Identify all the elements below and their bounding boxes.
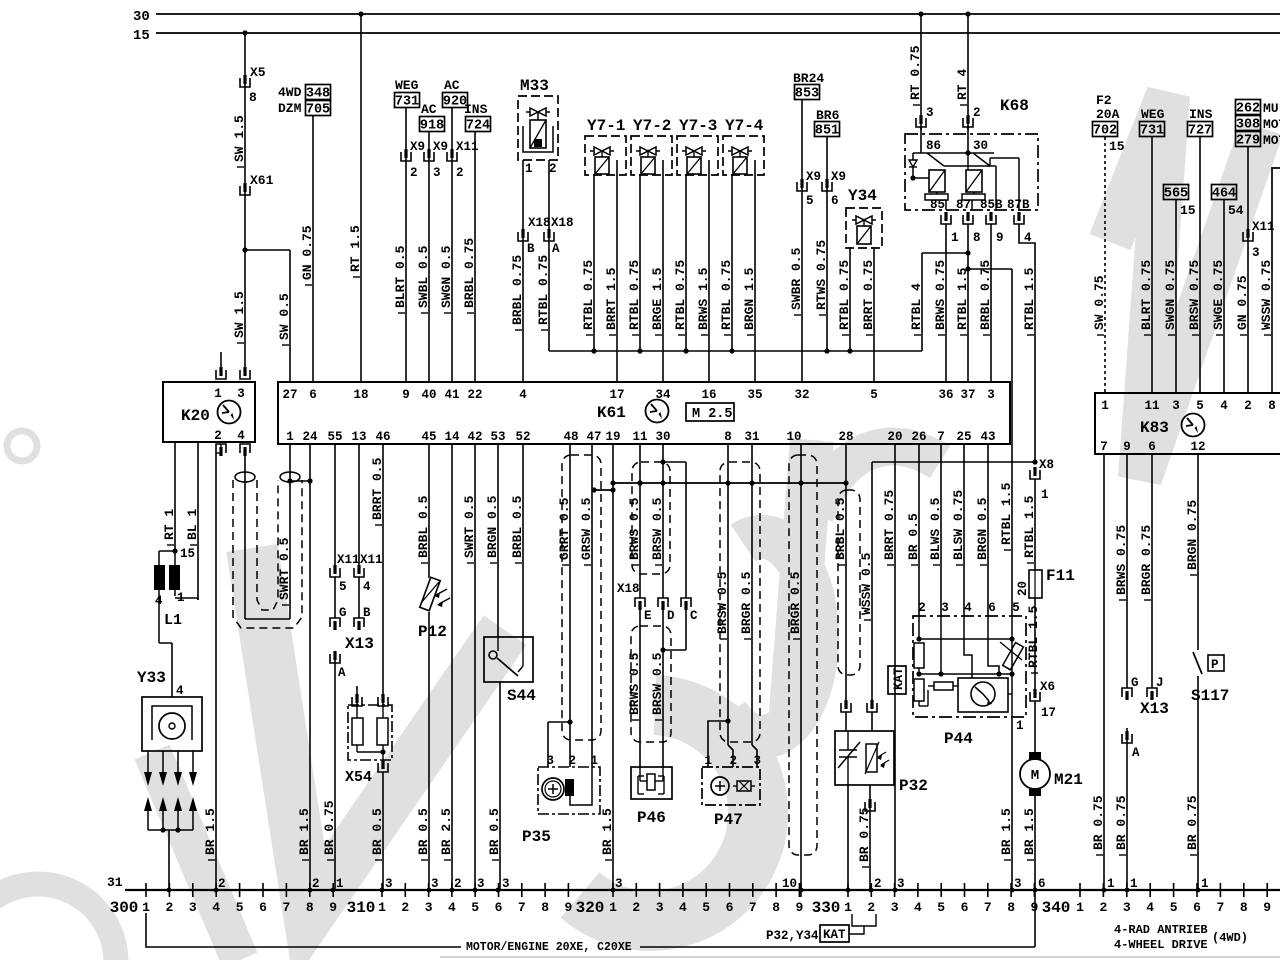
svg-text:X18: X18: [528, 216, 551, 230]
svg-text:47: 47: [586, 430, 601, 444]
svg-text:8: 8: [772, 900, 780, 915]
svg-text:BR 0.75: BR 0.75: [322, 800, 337, 855]
svg-text:RT 4: RT 4: [955, 69, 970, 100]
svg-text:20: 20: [1016, 581, 1030, 596]
svg-text:2: 2: [218, 877, 226, 891]
svg-text:M33: M33: [520, 77, 549, 95]
svg-text:BRGR 0.75: BRGR 0.75: [1139, 525, 1154, 595]
svg-text:WSSW 0.5: WSSW 0.5: [859, 552, 874, 615]
svg-text:P: P: [1211, 658, 1219, 672]
svg-text:3: 3: [502, 877, 510, 891]
svg-text:1: 1: [1076, 900, 1084, 915]
svg-text:RTWS 0.75: RTWS 0.75: [814, 240, 829, 310]
svg-text:5: 5: [702, 900, 710, 915]
svg-text:2: 2: [1099, 900, 1107, 915]
svg-text:1: 1: [590, 754, 598, 768]
svg-text:4: 4: [448, 900, 456, 915]
svg-text:RTBL 0.75: RTBL 0.75: [536, 255, 551, 325]
svg-text:BR 0.5: BR 0.5: [906, 513, 921, 560]
svg-text:20A: 20A: [1096, 107, 1120, 122]
svg-text:BRBL 0.75: BRBL 0.75: [510, 255, 525, 325]
svg-text:5: 5: [1170, 900, 1178, 915]
svg-text:262: 262: [1236, 102, 1260, 117]
svg-text:SW 0.5: SW 0.5: [277, 293, 292, 340]
svg-text:L1: L1: [164, 612, 182, 629]
svg-text:6: 6: [726, 900, 734, 915]
svg-text:X18: X18: [551, 216, 574, 230]
svg-text:36: 36: [938, 388, 953, 402]
svg-text:SWRT 0.5: SWRT 0.5: [462, 495, 477, 558]
svg-text:918: 918: [420, 119, 444, 134]
svg-text:3: 3: [425, 900, 433, 915]
svg-text:RTBL 0.75: RTBL 0.75: [627, 260, 642, 330]
svg-text:GN 0.75: GN 0.75: [1235, 275, 1250, 330]
svg-text:BR 1.5: BR 1.5: [999, 808, 1014, 855]
svg-text:BR 1.5: BR 1.5: [203, 808, 218, 855]
svg-text:4: 4: [1146, 900, 1154, 915]
svg-text:3: 3: [1123, 900, 1131, 915]
svg-text:853: 853: [795, 87, 819, 102]
svg-text:2: 2: [1244, 399, 1252, 413]
svg-text:6: 6: [988, 601, 996, 615]
svg-text:2: 2: [312, 877, 320, 891]
svg-text:GRRT 0.5: GRRT 0.5: [557, 497, 572, 560]
svg-text:724: 724: [466, 119, 490, 134]
svg-text:P32,Y34: P32,Y34: [766, 929, 819, 943]
svg-text:RTBL 1.5: RTBL 1.5: [1022, 495, 1037, 558]
svg-text:3: 3: [433, 166, 441, 180]
svg-text:WEG: WEG: [1141, 107, 1165, 122]
svg-text:3: 3: [1172, 399, 1180, 413]
svg-text:BR 1.5: BR 1.5: [1022, 808, 1037, 855]
svg-text:X11: X11: [360, 553, 383, 567]
svg-text:X5: X5: [250, 65, 266, 80]
svg-text:2: 2: [632, 900, 640, 915]
svg-text:7: 7: [282, 900, 290, 915]
svg-text:P32: P32: [899, 777, 928, 795]
svg-text:22: 22: [467, 388, 482, 402]
svg-text:GRSW 0.5: GRSW 0.5: [579, 497, 594, 560]
svg-text:B: B: [527, 242, 535, 256]
svg-text:BLSW 0.75: BLSW 0.75: [951, 490, 966, 560]
svg-text:X11: X11: [337, 553, 360, 567]
svg-text:8: 8: [249, 90, 257, 105]
svg-text:5: 5: [236, 900, 244, 915]
svg-text:BRWS 0.75: BRWS 0.75: [933, 260, 948, 330]
svg-text:30: 30: [133, 9, 150, 25]
svg-text:1: 1: [844, 900, 852, 915]
svg-text:1: 1: [286, 430, 294, 444]
svg-text:87: 87: [956, 198, 971, 212]
svg-text:AC: AC: [421, 102, 437, 117]
svg-text:4-RAD ANTRIEB: 4-RAD ANTRIEB: [1114, 923, 1208, 937]
svg-text:F2: F2: [1096, 93, 1112, 108]
svg-text:52: 52: [515, 430, 530, 444]
svg-text:4: 4: [212, 900, 220, 915]
svg-text:P35: P35: [522, 828, 551, 846]
svg-text:565: 565: [1164, 187, 1188, 202]
svg-text:34: 34: [655, 388, 671, 402]
svg-text:SWBL 0.5: SWBL 0.5: [416, 245, 431, 308]
svg-text:1: 1: [378, 900, 386, 915]
svg-text:3: 3: [477, 877, 485, 891]
svg-text:X9: X9: [806, 170, 821, 184]
svg-text:X18: X18: [617, 582, 640, 596]
svg-text:M 2.5: M 2.5: [692, 407, 733, 422]
svg-text:K68: K68: [1000, 97, 1029, 115]
svg-text:Y7-1: Y7-1: [587, 117, 625, 135]
svg-text:RTBL 1.5: RTBL 1.5: [955, 267, 970, 330]
svg-text:340: 340: [1042, 899, 1071, 917]
svg-text:2: 2: [918, 601, 926, 615]
svg-text:BR 1.5: BR 1.5: [297, 808, 312, 855]
svg-text:BL 1: BL 1: [185, 509, 200, 540]
svg-text:1: 1: [1016, 719, 1024, 733]
svg-text:308: 308: [1236, 118, 1260, 133]
svg-text:7: 7: [984, 900, 992, 915]
svg-text:Y7-4: Y7-4: [725, 117, 764, 135]
svg-text:G: G: [1131, 676, 1139, 690]
svg-text:BR 2.5: BR 2.5: [439, 808, 454, 855]
svg-text:2: 2: [549, 162, 557, 176]
svg-text:17: 17: [1041, 706, 1056, 720]
svg-text:3: 3: [987, 388, 995, 402]
svg-text:X6: X6: [1040, 680, 1055, 694]
svg-text:3: 3: [897, 877, 905, 891]
svg-text:BR 0.75: BR 0.75: [1185, 795, 1200, 850]
svg-text:P46: P46: [637, 809, 666, 827]
svg-text:S117: S117: [1191, 687, 1229, 705]
svg-text:S44: S44: [507, 687, 536, 705]
svg-text:8: 8: [724, 430, 732, 444]
svg-text:2: 2: [214, 429, 222, 443]
svg-text:BRGR 0.5: BRGR 0.5: [739, 571, 754, 634]
svg-text:54: 54: [1228, 203, 1244, 218]
svg-text:9: 9: [1263, 900, 1271, 915]
svg-text:3: 3: [546, 754, 554, 768]
svg-text:X61: X61: [250, 173, 274, 188]
svg-text:2: 2: [867, 900, 875, 915]
svg-text:16: 16: [701, 388, 716, 402]
svg-text:8: 8: [1240, 900, 1248, 915]
svg-text:BLWS 0.5: BLWS 0.5: [928, 497, 943, 560]
svg-text:5: 5: [339, 580, 347, 594]
svg-text:K20: K20: [181, 407, 210, 425]
svg-text:Y34: Y34: [848, 187, 877, 205]
svg-text:1: 1: [609, 900, 617, 915]
svg-text:8: 8: [306, 900, 314, 915]
svg-text:INS: INS: [1189, 107, 1213, 122]
svg-text:2: 2: [874, 877, 882, 891]
svg-text:BR 0.75: BR 0.75: [857, 807, 872, 862]
svg-text:RT 1: RT 1: [162, 509, 177, 540]
svg-text:X54: X54: [345, 769, 372, 786]
svg-text:M21: M21: [1054, 771, 1083, 789]
svg-text:BRWS 0.5: BRWS 0.5: [627, 497, 642, 560]
svg-text:BRGN 0.5: BRGN 0.5: [485, 495, 500, 558]
svg-text:RTBL 0.75: RTBL 0.75: [719, 260, 734, 330]
svg-text:9: 9: [329, 900, 337, 915]
svg-text:RTBL 0.75: RTBL 0.75: [837, 260, 852, 330]
svg-text:7: 7: [749, 900, 757, 915]
svg-text:X11: X11: [1252, 220, 1275, 234]
svg-text:BRRT 0.5: BRRT 0.5: [370, 457, 385, 520]
svg-text:BRBL 0.75: BRBL 0.75: [462, 238, 477, 308]
svg-text:MUL: MUL: [1263, 101, 1280, 116]
svg-text:BRRT 0.75: BRRT 0.75: [861, 260, 876, 330]
svg-text:5: 5: [870, 388, 878, 402]
svg-text:SW 1.5: SW 1.5: [232, 115, 247, 162]
svg-text:9: 9: [1123, 440, 1131, 454]
svg-text:KAT: KAT: [892, 667, 906, 690]
svg-text:E: E: [644, 609, 652, 623]
svg-text:2: 2: [401, 900, 409, 915]
svg-text:13: 13: [351, 430, 366, 444]
svg-text:3: 3: [615, 877, 623, 891]
svg-text:1: 1: [336, 877, 344, 891]
svg-text:4WD: 4WD: [278, 85, 302, 100]
svg-text:Y7-2: Y7-2: [633, 117, 671, 135]
svg-text:731: 731: [1140, 124, 1164, 139]
svg-text:6: 6: [831, 194, 839, 208]
svg-text:3: 3: [941, 601, 949, 615]
svg-text:BRWS 1.5: BRWS 1.5: [696, 267, 711, 330]
svg-text:320: 320: [576, 899, 605, 917]
svg-text:BR 1.5: BR 1.5: [600, 808, 615, 855]
svg-text:BR 0.75: BR 0.75: [1114, 795, 1129, 850]
svg-text:6: 6: [1038, 877, 1046, 891]
svg-text:731: 731: [395, 95, 419, 110]
svg-text:C: C: [690, 609, 698, 623]
svg-text:K83: K83: [1140, 419, 1169, 437]
svg-text:7: 7: [1216, 900, 1224, 915]
svg-text:A: A: [552, 242, 560, 256]
svg-text:MOTOR/ENGINE 20XE, C20XE: MOTOR/ENGINE 20XE, C20XE: [466, 941, 632, 954]
svg-text:5: 5: [1196, 399, 1204, 413]
svg-text:SW 0.75: SW 0.75: [1092, 275, 1107, 330]
svg-text:20: 20: [887, 430, 902, 444]
svg-text:7: 7: [518, 900, 526, 915]
svg-text:8: 8: [973, 231, 981, 245]
svg-text:AC: AC: [444, 78, 460, 93]
svg-text:5: 5: [937, 900, 945, 915]
svg-text:A: A: [1132, 746, 1140, 760]
svg-text:46: 46: [375, 430, 390, 444]
svg-text:10: 10: [786, 430, 801, 444]
svg-text:BLRT 0.5: BLRT 0.5: [393, 245, 408, 308]
svg-text:5: 5: [471, 900, 479, 915]
svg-text:BRWS 0.5: BRWS 0.5: [627, 652, 642, 715]
svg-text:6: 6: [259, 900, 267, 915]
svg-text:86: 86: [926, 139, 941, 153]
svg-text:X13: X13: [345, 635, 374, 653]
svg-text:24: 24: [302, 430, 318, 444]
svg-text:2: 2: [454, 877, 462, 891]
svg-text:464: 464: [1212, 187, 1236, 202]
svg-text:1: 1: [214, 387, 222, 401]
svg-text:1: 1: [525, 162, 533, 176]
svg-text:8: 8: [1007, 900, 1015, 915]
svg-text:RT 1.5: RT 1.5: [348, 225, 363, 272]
svg-text:MOT: MOT: [1263, 133, 1280, 148]
svg-text:11: 11: [1144, 399, 1159, 413]
svg-text:6: 6: [1148, 440, 1156, 454]
svg-text:1: 1: [1101, 399, 1109, 413]
svg-text:11: 11: [632, 430, 647, 444]
svg-text:RTBL 0.75: RTBL 0.75: [673, 260, 688, 330]
svg-text:3: 3: [1252, 246, 1260, 260]
svg-text:727: 727: [1188, 124, 1212, 139]
svg-text:28: 28: [838, 430, 853, 444]
svg-text:32: 32: [794, 388, 809, 402]
svg-text:X9: X9: [410, 140, 425, 154]
svg-text:5: 5: [806, 194, 814, 208]
svg-text:1: 1: [142, 900, 150, 915]
svg-text:X8: X8: [1039, 458, 1054, 472]
svg-text:SWRT 0.5: SWRT 0.5: [277, 537, 292, 600]
svg-text:P47: P47: [714, 811, 743, 829]
svg-text:6: 6: [495, 900, 503, 915]
svg-text:BRBL 0.5: BRBL 0.5: [510, 495, 525, 558]
svg-text:6: 6: [1193, 900, 1201, 915]
svg-text:KAT: KAT: [823, 928, 846, 942]
svg-text:P12: P12: [418, 623, 447, 641]
svg-text:1: 1: [1201, 877, 1209, 891]
svg-text:X13: X13: [1140, 700, 1169, 718]
svg-text:48: 48: [563, 430, 578, 444]
svg-text:SWBR 0.5: SWBR 0.5: [789, 247, 804, 310]
svg-text:BRGE 1.5: BRGE 1.5: [650, 267, 665, 330]
svg-text:GN 0.75: GN 0.75: [300, 225, 315, 280]
svg-text:MOT: MOT: [1263, 117, 1280, 132]
svg-text:9: 9: [795, 900, 803, 915]
svg-text:9: 9: [996, 231, 1004, 245]
svg-text:F11: F11: [1046, 567, 1075, 585]
svg-text:BRBL 0.5: BRBL 0.5: [416, 495, 431, 558]
svg-text:Y33: Y33: [137, 669, 166, 687]
svg-text:A: A: [338, 666, 346, 680]
svg-text:BRGR 0.5: BRGR 0.5: [788, 571, 803, 634]
svg-text:55: 55: [327, 430, 342, 444]
svg-text:35: 35: [747, 388, 762, 402]
svg-text:348: 348: [306, 87, 330, 102]
svg-text:SWGE 0.75: SWGE 0.75: [1211, 260, 1226, 330]
svg-text:6: 6: [961, 900, 969, 915]
svg-text:851: 851: [815, 124, 839, 139]
svg-text:40: 40: [421, 388, 436, 402]
svg-text:X9: X9: [433, 140, 448, 154]
svg-text:BLRT 0.75: BLRT 0.75: [1139, 260, 1154, 330]
svg-text:4: 4: [679, 900, 687, 915]
svg-text:2: 2: [165, 900, 173, 915]
svg-text:RTBL 1.5: RTBL 1.5: [1022, 267, 1037, 330]
svg-text:8: 8: [1268, 399, 1276, 413]
svg-text:1: 1: [1041, 488, 1049, 502]
svg-text:15: 15: [1109, 139, 1125, 154]
svg-text:BRRT 0.75: BRRT 0.75: [882, 490, 897, 560]
svg-text:3: 3: [656, 900, 664, 915]
svg-text:310: 310: [347, 899, 376, 917]
svg-text:1: 1: [951, 231, 959, 245]
svg-text:BR 0.5: BR 0.5: [370, 808, 385, 855]
svg-text:4: 4: [176, 684, 184, 698]
svg-text:1: 1: [1130, 877, 1138, 891]
svg-text:705: 705: [306, 103, 330, 118]
svg-text:5: 5: [1012, 601, 1020, 615]
svg-text:BR 0.5: BR 0.5: [416, 808, 431, 855]
svg-text:(4WD): (4WD): [1212, 931, 1248, 945]
svg-text:BRGN 0.5: BRGN 0.5: [975, 497, 990, 560]
svg-text:RT 0.75: RT 0.75: [908, 45, 923, 100]
svg-text:7: 7: [937, 430, 945, 444]
svg-text:SW 1.5: SW 1.5: [232, 291, 247, 338]
svg-text:BRRT 1.5: BRRT 1.5: [604, 267, 619, 330]
svg-text:4: 4: [914, 900, 922, 915]
svg-text:INS: INS: [464, 102, 488, 117]
svg-text:BRSW 0.5: BRSW 0.5: [715, 571, 730, 634]
svg-text:J: J: [1156, 676, 1164, 690]
svg-text:12: 12: [1190, 440, 1205, 454]
svg-text:87B: 87B: [1007, 198, 1030, 212]
svg-text:15: 15: [1180, 203, 1196, 218]
svg-text:RTBL 0.75: RTBL 0.75: [581, 260, 596, 330]
svg-text:27: 27: [282, 388, 297, 402]
svg-text:BRSW 0.5: BRSW 0.5: [650, 652, 665, 715]
svg-text:26: 26: [911, 430, 926, 444]
svg-text:3: 3: [891, 900, 899, 915]
svg-text:9: 9: [564, 900, 572, 915]
svg-text:4: 4: [519, 388, 527, 402]
svg-text:15: 15: [180, 547, 195, 561]
svg-text:42: 42: [467, 430, 482, 444]
svg-text:85: 85: [930, 198, 945, 212]
svg-text:10: 10: [782, 877, 797, 891]
svg-text:45: 45: [421, 430, 436, 444]
svg-text:BRGN 0.75: BRGN 0.75: [1185, 500, 1200, 570]
svg-text:300: 300: [110, 899, 139, 917]
svg-text:3: 3: [189, 900, 197, 915]
svg-text:SWGN 0.75: SWGN 0.75: [1163, 260, 1178, 330]
svg-text:WEG: WEG: [395, 78, 419, 93]
svg-text:30: 30: [973, 139, 988, 153]
svg-text:DZM: DZM: [278, 101, 302, 116]
svg-text:3: 3: [385, 877, 393, 891]
svg-text:4-WHEEL DRIVE: 4-WHEEL DRIVE: [1114, 938, 1208, 952]
svg-text:2: 2: [568, 754, 576, 768]
svg-text:4: 4: [363, 580, 371, 594]
svg-text:31: 31: [744, 430, 759, 444]
svg-text:14: 14: [444, 430, 460, 444]
svg-text:9: 9: [402, 388, 410, 402]
svg-text:53: 53: [490, 430, 505, 444]
svg-text:BR 0.5: BR 0.5: [487, 808, 502, 855]
svg-text:37: 37: [960, 388, 975, 402]
svg-text:SWGN 0.5: SWGN 0.5: [439, 245, 454, 308]
svg-text:25: 25: [956, 430, 971, 444]
svg-text:702: 702: [1093, 124, 1117, 139]
svg-text:3: 3: [1014, 877, 1022, 891]
svg-text:43: 43: [980, 430, 995, 444]
svg-text:4: 4: [237, 429, 245, 443]
svg-text:1: 1: [1107, 877, 1115, 891]
svg-text:RTBL 4: RTBL 4: [909, 283, 924, 330]
svg-text:279: 279: [1236, 134, 1260, 149]
svg-text:30: 30: [655, 430, 670, 444]
svg-text:1: 1: [704, 754, 712, 768]
svg-text:BRWS 0.75: BRWS 0.75: [1114, 525, 1129, 595]
svg-text:6: 6: [309, 388, 317, 402]
svg-text:2: 2: [410, 166, 418, 180]
